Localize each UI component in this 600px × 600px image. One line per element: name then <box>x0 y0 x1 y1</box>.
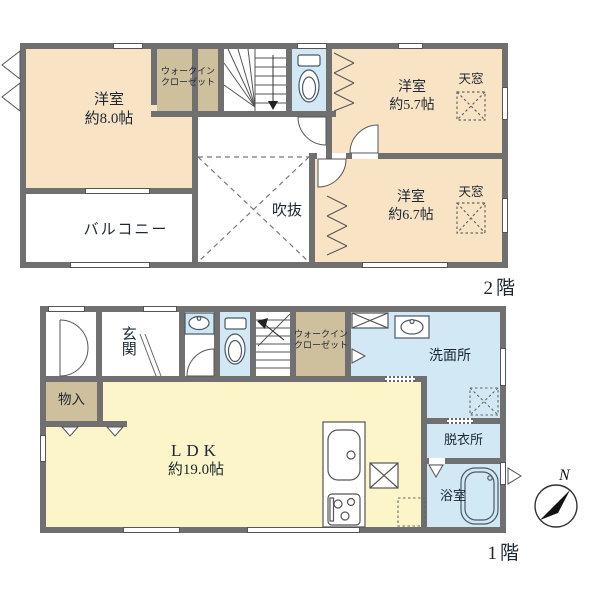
floor-1-label: 1階 <box>452 538 522 565</box>
toilet-icon <box>298 55 320 102</box>
datsuijo-label: 脱衣所 <box>427 432 500 448</box>
dotted-area-icon <box>398 498 425 526</box>
washbasin-icon <box>395 316 429 338</box>
room-name: 洋室 <box>26 91 192 110</box>
floor-1-plan: 玄関 物入 LDK 約19.0帖 ウォークイン クローゼット 洗面所 脱衣所 浴… <box>40 306 506 533</box>
door-triangle-icon <box>508 468 521 484</box>
void-label: 吹抜 <box>252 202 322 221</box>
door-triangle-icon <box>352 349 365 363</box>
room-label: 洋室 約8.0帖 <box>26 91 192 129</box>
yokushitsu-label: 浴室 <box>425 488 481 504</box>
wic-label: ウォークイン クローゼット <box>154 66 222 89</box>
storage-x-icon <box>352 313 388 328</box>
door-arc <box>187 349 214 376</box>
room-size: 約8.0帖 <box>26 110 192 129</box>
appliance-x-icon <box>370 463 398 488</box>
casement-window-icon <box>2 51 20 111</box>
folding-door-icon <box>62 427 123 436</box>
window <box>70 262 150 268</box>
genkan-label: 玄関 <box>118 326 137 356</box>
compass-north-label: N <box>558 467 571 484</box>
floor-plan-canvas: 洋室 約8.0帖 ウォークイン クローゼット 洋室 約5.7帖 天窓 洋室 約6… <box>0 0 600 600</box>
kitchen-counter-icon <box>323 422 365 527</box>
genkan-step-line <box>140 334 161 376</box>
window <box>247 527 360 533</box>
storage-dotted-icon <box>470 388 498 415</box>
window <box>502 198 508 233</box>
skylight-label: 天窓 <box>446 185 496 201</box>
stairs-arrow-icon <box>268 101 278 110</box>
window <box>502 87 508 120</box>
ldk-label: LDK 約19.0帖 <box>106 440 286 480</box>
floor-2-plan: 洋室 約8.0帖 ウォークイン クローゼット 洋室 約5.7帖 天窓 洋室 約6… <box>20 43 508 268</box>
room-size: 約6.7帖 <box>326 207 496 225</box>
compass-icon: N <box>528 462 588 532</box>
room-size: 約19.0帖 <box>106 461 286 480</box>
window <box>362 262 448 268</box>
balcony-label: バルコニー <box>51 221 201 240</box>
door-arc <box>298 117 378 187</box>
room-size: 約5.7帖 <box>332 97 492 115</box>
monoire-label: 物入 <box>46 392 97 409</box>
washbasin-icon <box>185 313 214 334</box>
bath-door <box>500 462 506 485</box>
wic-label: ウォークイン クローゼット <box>292 329 350 352</box>
door-triangle-icon <box>429 465 443 477</box>
room-name: LDK <box>106 440 286 461</box>
window <box>123 527 180 533</box>
double-door-arc <box>60 320 88 376</box>
skylight-label: 天窓 <box>446 72 496 88</box>
senmenjo-label: 洗面所 <box>396 348 504 366</box>
toilet-icon <box>225 318 246 364</box>
floor-2-label: 2階 <box>458 273 518 300</box>
